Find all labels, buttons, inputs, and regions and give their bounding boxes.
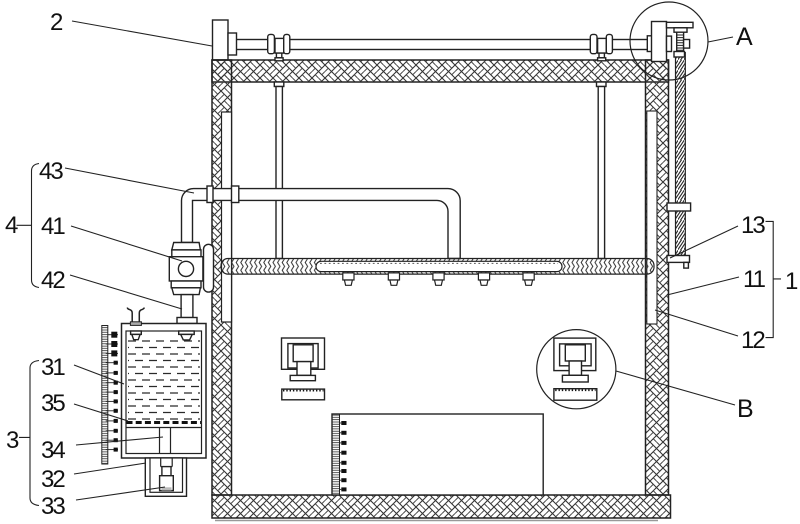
svg-text:13: 13 xyxy=(741,212,765,239)
svg-text:A: A xyxy=(736,23,753,51)
svg-text:B: B xyxy=(737,395,754,423)
svg-text:41: 41 xyxy=(41,213,65,240)
svg-text:43: 43 xyxy=(39,158,63,185)
svg-text:42: 42 xyxy=(41,267,65,294)
svg-text:11: 11 xyxy=(743,266,766,293)
svg-text:31: 31 xyxy=(41,354,65,381)
svg-text:35: 35 xyxy=(41,390,65,417)
svg-text:34: 34 xyxy=(41,437,65,464)
svg-text:12: 12 xyxy=(741,327,765,354)
svg-text:32: 32 xyxy=(41,466,65,493)
svg-text:33: 33 xyxy=(41,493,65,520)
svg-text:2: 2 xyxy=(50,9,63,36)
svg-text:4: 4 xyxy=(5,212,18,239)
svg-text:3: 3 xyxy=(6,427,19,454)
svg-text:1: 1 xyxy=(785,268,798,295)
